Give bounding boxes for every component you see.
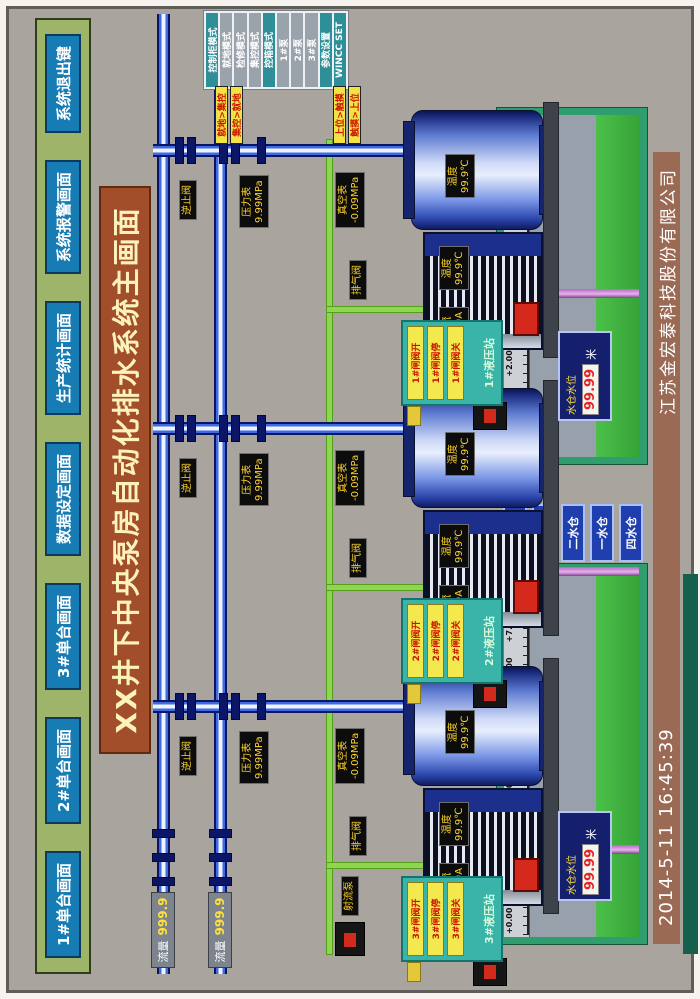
sump-left-level-display: 水仓水位 99.99 米: [558, 811, 612, 901]
mode-row[interactable]: 3#泵: [305, 13, 317, 87]
mode-row[interactable]: 检修模式: [234, 13, 246, 87]
jet-pump-device: [335, 922, 365, 956]
gate-valve-close-button[interactable]: 3#闸阀关: [447, 882, 464, 956]
hydraulic-station-title: 2#液压站: [481, 604, 497, 678]
gate-valve-stop-button[interactable]: 3#闸阀停: [427, 882, 444, 956]
flow-label: 流量: [155, 940, 171, 962]
riser-flange: [231, 693, 240, 720]
vacuum-gauge-label: 真空表-0.09MPa: [335, 728, 365, 784]
riser-flange: [187, 137, 196, 164]
motor-temp-label: 温度99.9℃: [439, 247, 469, 291]
nav-button-pump3-screen[interactable]: 3#单台画面: [45, 583, 81, 690]
nav-button-data-setting[interactable]: 数据设定画面: [45, 442, 81, 556]
level-unit: 米: [583, 349, 599, 360]
pressure-gauge-label: 压力表9.99MPa: [239, 175, 269, 228]
hydraulic-station-panel-3: 3#闸阀开 3#闸阀停 3#闸阀关 3#液压站: [401, 876, 503, 962]
nav-button-production-stats[interactable]: 生产统计画面: [45, 301, 81, 415]
flow-meter-main2: 流量 999.9: [208, 892, 232, 968]
mode-switch-tag[interactable]: 就地>集控: [215, 86, 228, 144]
riser-flange: [187, 415, 196, 442]
hmi-screen: 流量 999.9 流量 999.9 射流泵 +0.00 +1.00 +2.00 …: [6, 6, 694, 993]
nav-button-system-exit[interactable]: 系统退出键: [45, 34, 81, 133]
company-name: 江苏金宏泰科技股份有限公司: [654, 168, 679, 415]
hydraulic-station-panel-2: 2#闸阀开 2#闸阀停 2#闸阀关 2#液压站: [401, 598, 503, 684]
oil-pump-device: [473, 680, 507, 708]
sump-button[interactable]: 四水仓: [619, 504, 643, 562]
riser-flange: [219, 693, 228, 720]
hydraulic-station-title: 3#液压站: [481, 882, 497, 956]
motor-junction-box: [513, 580, 539, 614]
sump-right-level-display: 水仓水位 99.99 米: [558, 331, 612, 421]
gate-valve-close-button[interactable]: 1#闸阀关: [447, 326, 464, 400]
gate-valve-close-button[interactable]: 2#闸阀关: [447, 604, 464, 678]
hydraulic-station-title: 1#液压站: [481, 326, 497, 400]
mode-row[interactable]: 参数设置: [320, 13, 332, 87]
mode-row[interactable]: 控箱模式: [263, 13, 275, 87]
riser-flange: [231, 415, 240, 442]
riser-flange: [175, 137, 184, 164]
vacuum-gauge-label: 真空表-0.09MPa: [335, 450, 365, 506]
level-value: 99.99: [582, 844, 599, 895]
mode-switch-tag[interactable]: 触摸>上位: [348, 86, 361, 144]
datetime: 2014-5-11 16:45:39: [656, 728, 677, 926]
pump-base: [543, 102, 559, 358]
check-valve-label: 逆止阀: [179, 180, 197, 220]
check-valve-label: 逆止阀: [179, 458, 197, 498]
pump-unit-3: 逆止阀 压力表9.99MPa 真空表-0.09MPa 排气阀 3#闸阀开 3#闸…: [139, 650, 584, 950]
oil-pump-device: [473, 958, 507, 986]
nav-bar: 1#单台画面 2#单台画面 3#单台画面 数据设定画面 生产统计画面 系统报警画…: [35, 18, 91, 974]
mode-row[interactable]: 就地模式: [220, 13, 232, 87]
hydraulic-station-panel-1: 1#闸阀开 1#闸阀停 1#闸阀关 1#液压站: [401, 320, 503, 406]
mode-row[interactable]: 控制柜模式: [206, 13, 218, 87]
control-mode-panel: 控制柜模式 就地模式 检修模式 集控模式 控箱模式 1#泵 2#泵 3#泵 参数…: [203, 10, 349, 90]
riser-flange: [175, 693, 184, 720]
flow-value: 999.9: [213, 898, 227, 936]
oil-pump-device: [473, 402, 507, 430]
motor-junction-box: [513, 858, 539, 892]
gate-valve-open-button[interactable]: 3#闸阀开: [407, 882, 424, 956]
flow-label: 流量: [212, 940, 228, 962]
pump-base: [543, 380, 559, 636]
nav-button-pump2-screen[interactable]: 2#单台画面: [45, 717, 81, 824]
motor-temp-label: 温度99.9℃: [439, 803, 469, 847]
riser-flange: [175, 415, 184, 442]
mode-row[interactable]: 1#泵: [277, 13, 289, 87]
hydraulic-pipe-stub: [407, 962, 421, 982]
riser-flange: [257, 415, 266, 442]
mode-row[interactable]: WINCC SET: [334, 13, 346, 87]
pump-unit-1: 逆止阀 压力表9.99MPa 真空表-0.09MPa 排气阀 1#闸阀开 1#闸…: [139, 94, 584, 394]
sump-button[interactable]: 一水仓: [590, 504, 614, 562]
riser-flange: [219, 415, 228, 442]
bottom-frame-strip: [683, 574, 698, 954]
mode-switch-tag[interactable]: 集控>就地: [230, 86, 243, 144]
hydraulic-pipe-stub: [407, 684, 421, 704]
pump-temp-label: 温度99.9℃: [445, 433, 475, 477]
level-value: 99.99: [582, 364, 599, 415]
hydraulic-pipe-stub: [407, 406, 421, 426]
rotated-photo-frame: 流量 999.9 流量 999.9 射流泵 +0.00 +1.00 +2.00 …: [0, 0, 700, 999]
pressure-gauge-label: 压力表9.99MPa: [239, 453, 269, 506]
gate-valve-open-button[interactable]: 1#闸阀开: [407, 326, 424, 400]
riser-flange: [187, 693, 196, 720]
mode-switch-tag[interactable]: 上位>触摸: [333, 86, 346, 144]
jet-pump-motor-box: [344, 933, 356, 947]
mode-row[interactable]: 2#泵: [291, 13, 303, 87]
level-label: 水仓水位: [563, 817, 578, 895]
oil-pump-box: [484, 409, 496, 423]
gate-valve-open-button[interactable]: 2#闸阀开: [407, 604, 424, 678]
mode-row[interactable]: 集控模式: [249, 13, 261, 87]
pump-body: [411, 110, 543, 230]
flow-value: 999.9: [156, 898, 170, 936]
riser-flange: [257, 693, 266, 720]
check-valve-label: 逆止阀: [179, 736, 197, 776]
footer-bar: 2014-5-11 16:45:39 江苏金宏泰科技股份有限公司: [653, 152, 680, 944]
level-label: 水仓水位: [563, 337, 578, 415]
page-title: XX井下中央泵房自动化排水系统主画面: [99, 186, 151, 754]
gate-valve-stop-button[interactable]: 2#闸阀停: [427, 604, 444, 678]
air-valve-label: 排气阀: [349, 816, 367, 856]
motor-temp-label: 温度99.9℃: [439, 525, 469, 569]
nav-button-pump1-screen[interactable]: 1#单台画面: [45, 851, 81, 958]
hmi-screen-rotated: 流量 999.9 流量 999.9 射流泵 +0.00 +1.00 +2.00 …: [0, 0, 700, 999]
air-valve-label: 排气阀: [349, 538, 367, 578]
pump-temp-label: 温度99.9℃: [445, 155, 475, 199]
jet-pump-label: 射流泵: [341, 876, 359, 916]
pump-temp-label: 温度99.9℃: [445, 711, 475, 755]
motor-junction-box: [513, 302, 539, 336]
oil-pump-box: [484, 965, 496, 979]
gate-valve-stop-button[interactable]: 1#闸阀停: [427, 326, 444, 400]
pump-base: [543, 658, 559, 914]
riser-flange: [257, 137, 266, 164]
nav-button-alarm-screen[interactable]: 系统报警画面: [45, 160, 81, 274]
level-unit: 米: [583, 829, 599, 840]
pressure-gauge-label: 压力表9.99MPa: [239, 731, 269, 784]
vacuum-gauge-label: 真空表-0.09MPa: [335, 172, 365, 228]
pump-unit-2: 逆止阀 压力表9.99MPa 真空表-0.09MPa 排气阀 2#闸阀开 2#闸…: [139, 372, 584, 672]
flow-meter-main1: 流量 999.9: [151, 892, 175, 968]
air-valve-label: 排气阀: [349, 260, 367, 300]
oil-pump-box: [484, 687, 496, 701]
